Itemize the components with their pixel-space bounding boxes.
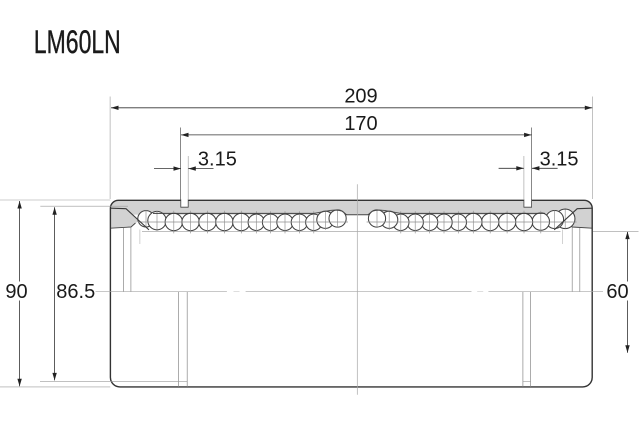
svg-text:3.15: 3.15 <box>198 149 237 171</box>
svg-text:170: 170 <box>344 113 377 135</box>
svg-text:90: 90 <box>5 281 27 303</box>
svg-text:209: 209 <box>344 86 377 108</box>
svg-text:LM60LN: LM60LN <box>34 24 121 60</box>
svg-text:86.5: 86.5 <box>56 281 95 303</box>
svg-text:3.15: 3.15 <box>540 149 579 171</box>
svg-text:60: 60 <box>606 281 628 303</box>
